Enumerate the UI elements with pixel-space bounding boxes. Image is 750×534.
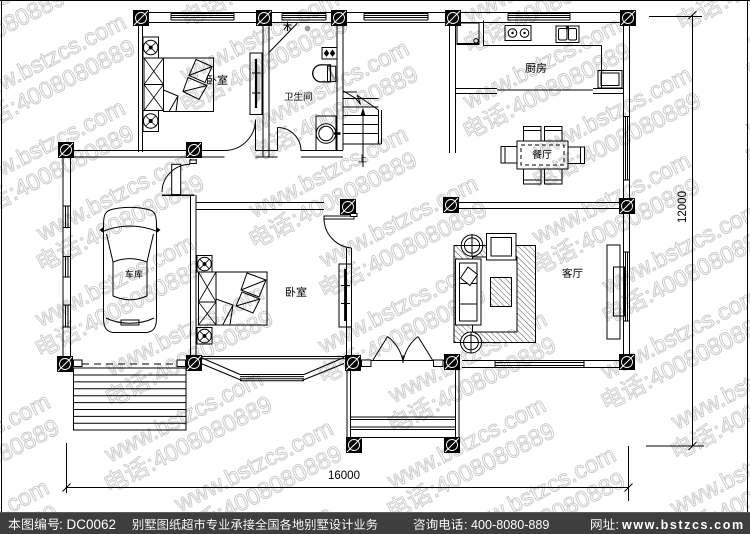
svg-text:12000: 12000 [677,191,689,223]
svg-text:: DC0062: : DC0062 [59,517,116,532]
svg-text::: : [616,518,619,532]
svg-text:16000: 16000 [328,470,360,482]
svg-text:www.bstzcs.com: www.bstzcs.com [621,518,745,532]
svg-text:: 400-8080-889: : 400-8080-889 [464,518,549,532]
